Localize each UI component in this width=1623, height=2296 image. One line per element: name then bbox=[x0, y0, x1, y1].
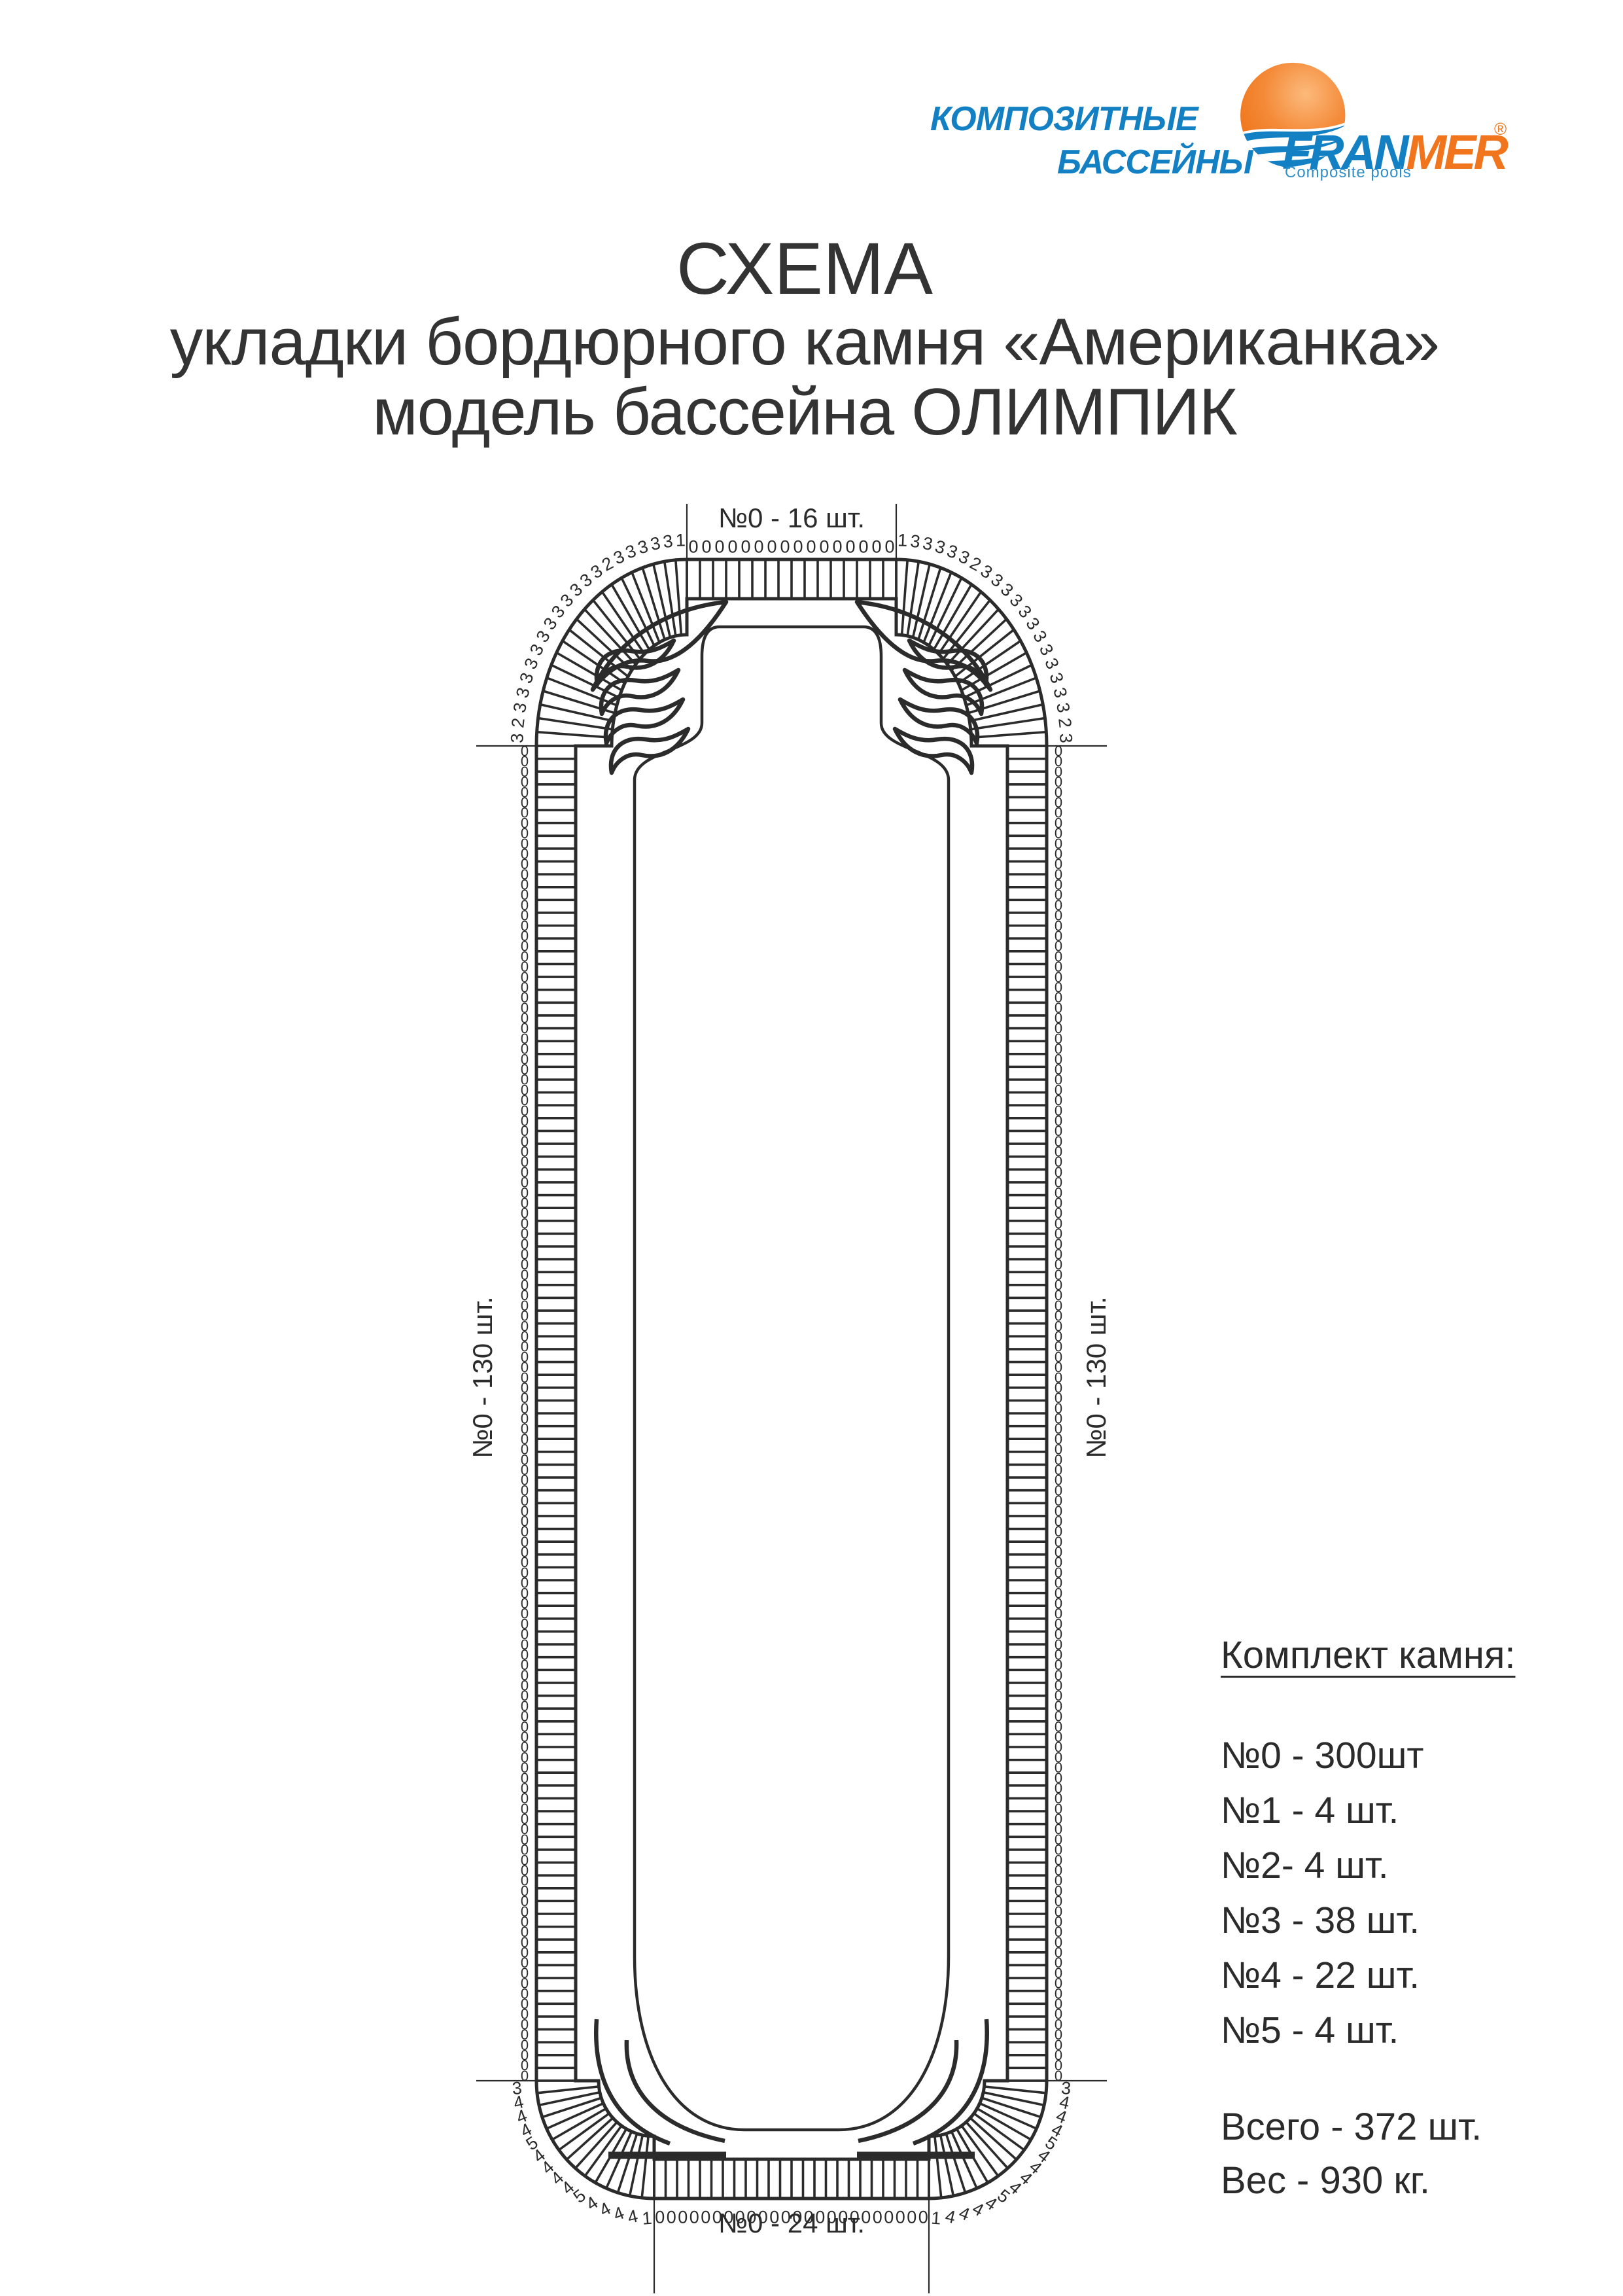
scheme-page: КОМПОЗИТНЫЕ БАССЕЙНЫ FRANMER ® Composite… bbox=[0, 0, 1623, 2296]
stone-tick-top-right-corner bbox=[947, 609, 998, 664]
label-bottom-straight: №0 - 24 шт. bbox=[718, 2208, 865, 2238]
stone-number-bottom-right-corner: 1 bbox=[930, 2208, 941, 2229]
stone-tick-top-left-corner bbox=[537, 732, 612, 738]
stone-number-left-side: 0 bbox=[521, 2068, 529, 2084]
stone-number-top-right-corner: 3 bbox=[1053, 701, 1073, 714]
stone-number-top: 0 bbox=[754, 537, 763, 556]
stone-number-top: 0 bbox=[727, 537, 737, 556]
pool-basin-outline bbox=[635, 627, 949, 2130]
stone-number-top-left-corner: 3 bbox=[623, 540, 638, 562]
legend-item-2: №2- 4 шт. bbox=[1221, 1838, 1515, 1893]
stone-number-top: 0 bbox=[845, 537, 855, 556]
stone-number-top-left-corner: 3 bbox=[510, 701, 531, 714]
stone-tick-bottom-left-corner bbox=[642, 2136, 648, 2198]
stone-number-top: 0 bbox=[701, 537, 711, 556]
legend-item-0: №0 - 300шт bbox=[1221, 1728, 1515, 1783]
stone-tick-bottom-left-corner bbox=[630, 2135, 643, 2196]
stone-tick-top-right-corner bbox=[971, 732, 1047, 738]
stone-number-top-left-corner: 1 bbox=[675, 530, 686, 550]
stone-number-top-right-corner: 3 bbox=[921, 533, 934, 554]
bottom-step-curve-inner bbox=[627, 2040, 725, 2141]
stone-number-top-right-corner: 3 bbox=[909, 531, 921, 552]
stone-number-bottom: 0 bbox=[667, 2207, 676, 2227]
stone-number-bottom: 0 bbox=[873, 2207, 882, 2227]
stone-number-top-left-corner: 3 bbox=[662, 531, 674, 552]
stone-number-top: 0 bbox=[871, 537, 881, 556]
stone-number-top-left-corner: 3 bbox=[512, 685, 534, 699]
stone-number-top-left-corner: 3 bbox=[515, 670, 537, 686]
stone-number-top-right-corner: 1 bbox=[898, 530, 908, 550]
stone-number-bottom: 0 bbox=[655, 2207, 665, 2227]
stone-number-top: 0 bbox=[793, 537, 803, 556]
stone-number-top-left-corner: 2 bbox=[508, 717, 528, 729]
stone-number-top: 0 bbox=[884, 537, 894, 556]
stone-tick-bottom-right-corner bbox=[983, 2093, 1044, 2106]
legend-total-count: Всего - 372 шт. bbox=[1221, 2100, 1482, 2154]
stone-kit-legend: Комплект камня: №0 - 300шт №1 - 4 шт. №2… bbox=[1221, 1633, 1515, 2058]
stone-number-top-right-corner: 3 bbox=[1056, 733, 1076, 743]
stone-number-bottom-left-corner: 1 bbox=[641, 2208, 652, 2229]
stone-number-top: 0 bbox=[741, 537, 750, 556]
stone-tick-bottom-left-corner bbox=[537, 2087, 599, 2093]
stone-number-top: 0 bbox=[858, 537, 868, 556]
stone-number-top: 0 bbox=[780, 537, 790, 556]
corner-step-leaf bbox=[611, 729, 688, 773]
stone-number-top: 0 bbox=[767, 537, 777, 556]
stone-tick-top-left-corner bbox=[585, 609, 636, 664]
legend-total-weight: Вес - 930 кг. bbox=[1221, 2154, 1482, 2208]
legend-item-3: №3 - 38 шт. bbox=[1221, 1893, 1515, 1948]
legend-item-1: №1 - 4 шт. bbox=[1221, 1783, 1515, 1838]
legend-totals: Всего - 372 шт. Вес - 930 кг. bbox=[1221, 2100, 1482, 2208]
stone-tick-top-right-corner bbox=[902, 560, 908, 635]
stone-number-bottom: 0 bbox=[678, 2207, 688, 2227]
stone-number-bottom-left-corner: 4 bbox=[610, 2203, 627, 2225]
bottom-step-curve-inner bbox=[858, 2040, 956, 2141]
label-top-straight: №0 - 16 шт. bbox=[718, 503, 865, 533]
stone-number-top: 0 bbox=[688, 537, 698, 556]
stone-number-top-right-corner: 3 bbox=[1049, 685, 1071, 699]
stone-number-bottom: 0 bbox=[907, 2207, 916, 2227]
stone-tick-bottom-left-corner bbox=[539, 2093, 600, 2106]
label-left-side: №0 - 130 шт. bbox=[467, 1296, 498, 1458]
stone-number-top-left-corner: 3 bbox=[636, 537, 650, 558]
stone-number-bottom: 0 bbox=[896, 2207, 905, 2227]
stone-number-top-left-corner: 3 bbox=[520, 655, 542, 672]
stone-number-top: 0 bbox=[832, 537, 842, 556]
stone-number-top-left-corner: 3 bbox=[649, 533, 662, 554]
label-right-side: №0 - 130 шт. bbox=[1081, 1296, 1111, 1458]
stone-number-bottom: 0 bbox=[884, 2207, 894, 2227]
legend-title: Комплект камня: bbox=[1221, 1633, 1515, 1677]
stone-number-top-right-corner: 3 bbox=[1045, 670, 1067, 686]
stone-number-top: 0 bbox=[819, 537, 829, 556]
stone-tick-top-left-corner bbox=[676, 560, 682, 635]
stone-tick-bottom-right-corner bbox=[941, 2135, 954, 2196]
stone-number-top: 0 bbox=[806, 537, 816, 556]
stone-number-bottom: 0 bbox=[689, 2207, 699, 2227]
stone-number-top-right-corner: 2 bbox=[1055, 717, 1075, 729]
legend-item-4: №4 - 22 шт. bbox=[1221, 1948, 1515, 2003]
stone-number-top-right-corner: 3 bbox=[1036, 641, 1058, 658]
stone-number-top-left-corner: 3 bbox=[507, 733, 527, 743]
stone-tick-top-left-corner bbox=[538, 718, 613, 730]
stone-tick-bottom-right-corner bbox=[985, 2087, 1046, 2093]
legend-item-5: №5 - 4 шт. bbox=[1221, 2003, 1515, 2058]
stone-number-bottom-left-corner: 4 bbox=[626, 2206, 640, 2228]
stone-number-top-right-corner: 3 bbox=[1041, 655, 1063, 672]
stone-tick-bottom-right-corner bbox=[935, 2136, 941, 2198]
pool-border-outer-edge bbox=[536, 559, 1047, 2199]
corner-step-leaf bbox=[895, 729, 972, 773]
stone-number-bottom-right-corner: 4 bbox=[943, 2206, 957, 2228]
stone-number-bottom: 0 bbox=[918, 2207, 928, 2227]
stone-tick-top-right-corner bbox=[971, 718, 1045, 730]
stone-number-top: 0 bbox=[714, 537, 724, 556]
stone-number-bottom: 0 bbox=[701, 2207, 710, 2227]
stone-number-top-right-corner: 3 bbox=[933, 537, 947, 558]
pool-border-inner-edge bbox=[576, 599, 1007, 2159]
